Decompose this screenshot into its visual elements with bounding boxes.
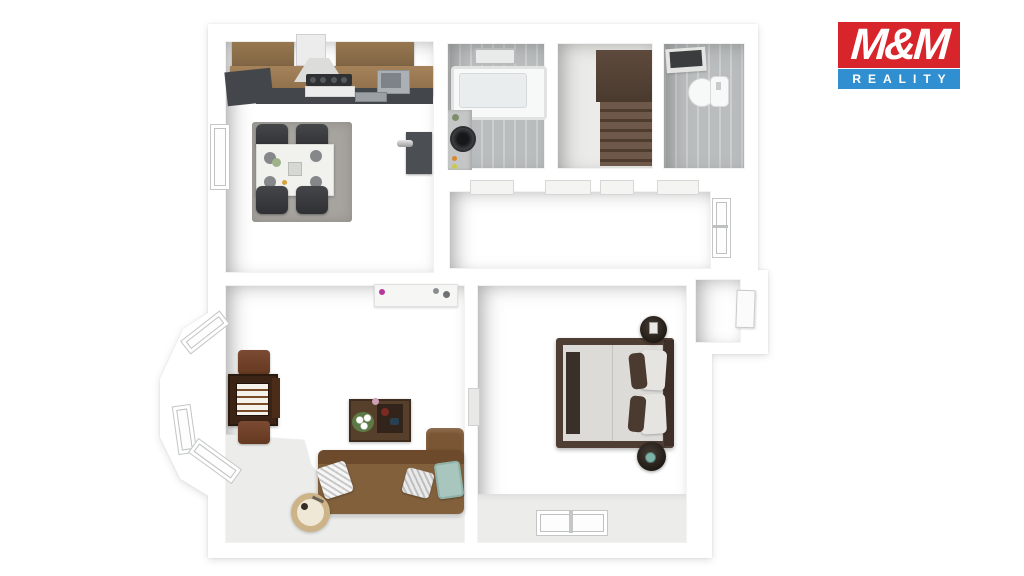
side-chair — [238, 421, 270, 444]
burner-icon — [341, 77, 347, 83]
chrome-pipe — [397, 140, 413, 147]
stairs-icon — [600, 102, 652, 166]
dining-chair — [256, 186, 288, 214]
clock-icon — [645, 452, 656, 463]
burner-icon — [331, 77, 337, 83]
dining-chair — [296, 186, 328, 214]
washing-machine-icon — [450, 126, 476, 152]
bed-pillow-dark — [627, 395, 646, 432]
door-opening — [600, 180, 634, 195]
logo-mm-block: M&M — [838, 22, 960, 68]
burner-icon — [320, 77, 326, 83]
hallway-floor — [450, 192, 710, 268]
door-opening — [657, 180, 699, 195]
drying-tray — [355, 92, 387, 102]
bed-runner — [566, 352, 580, 434]
floorplan-render: M&M REALITY — [0, 0, 1024, 576]
bedroom-door-icon — [468, 388, 480, 426]
kitchen-window — [210, 124, 230, 190]
floor-lamp-icon — [291, 493, 330, 532]
hallway-window — [712, 198, 731, 258]
bedroom-window-divider — [569, 511, 573, 533]
centerpiece-icon — [288, 162, 302, 176]
toilet-tank-icon — [710, 76, 729, 107]
oven-front — [305, 86, 355, 97]
logo-reality-block: REALITY — [838, 69, 960, 89]
side-chair — [238, 350, 270, 375]
decor-icon — [379, 289, 385, 295]
toiletry-icon — [452, 156, 457, 161]
logo-mm-text: M&M — [849, 23, 948, 67]
nightstand-lamp — [649, 322, 658, 334]
game-table-top — [236, 383, 269, 416]
toiletry-icon — [452, 164, 457, 169]
bathtub-basin — [459, 73, 527, 108]
hall-extension-floor — [696, 280, 740, 342]
book-icon — [390, 418, 399, 425]
entry-door-icon — [735, 290, 755, 329]
mm-reality-logo: M&M REALITY — [838, 22, 960, 89]
stair-landing — [596, 50, 652, 102]
pillow-icon — [434, 460, 465, 499]
sink-basin — [381, 73, 401, 88]
hallway-window-divider — [713, 225, 728, 228]
flowers-icon — [352, 412, 374, 432]
burner-icon — [310, 77, 316, 83]
plant-icon — [452, 114, 459, 121]
countertop-left — [224, 68, 273, 107]
book-icon — [381, 408, 389, 416]
island-radiator-unit — [406, 132, 432, 174]
fruit-icon — [282, 180, 287, 185]
logo-reality-text: REALITY — [845, 73, 952, 85]
kitchen-hall-doorway — [432, 252, 452, 288]
decor-icon — [443, 291, 450, 298]
towel-rack-icon — [474, 48, 516, 65]
lamp-bulb — [301, 503, 308, 510]
mattress-divider — [612, 345, 613, 441]
door-opening — [470, 180, 514, 195]
toilet-button — [716, 82, 721, 90]
decor-icon — [433, 288, 439, 294]
ceiling-vent-icon — [669, 50, 702, 68]
door-opening — [545, 180, 591, 195]
flower-icon — [372, 398, 379, 405]
game-table-handle — [272, 378, 280, 418]
greens-icon — [272, 158, 281, 167]
plate-icon — [310, 150, 322, 162]
